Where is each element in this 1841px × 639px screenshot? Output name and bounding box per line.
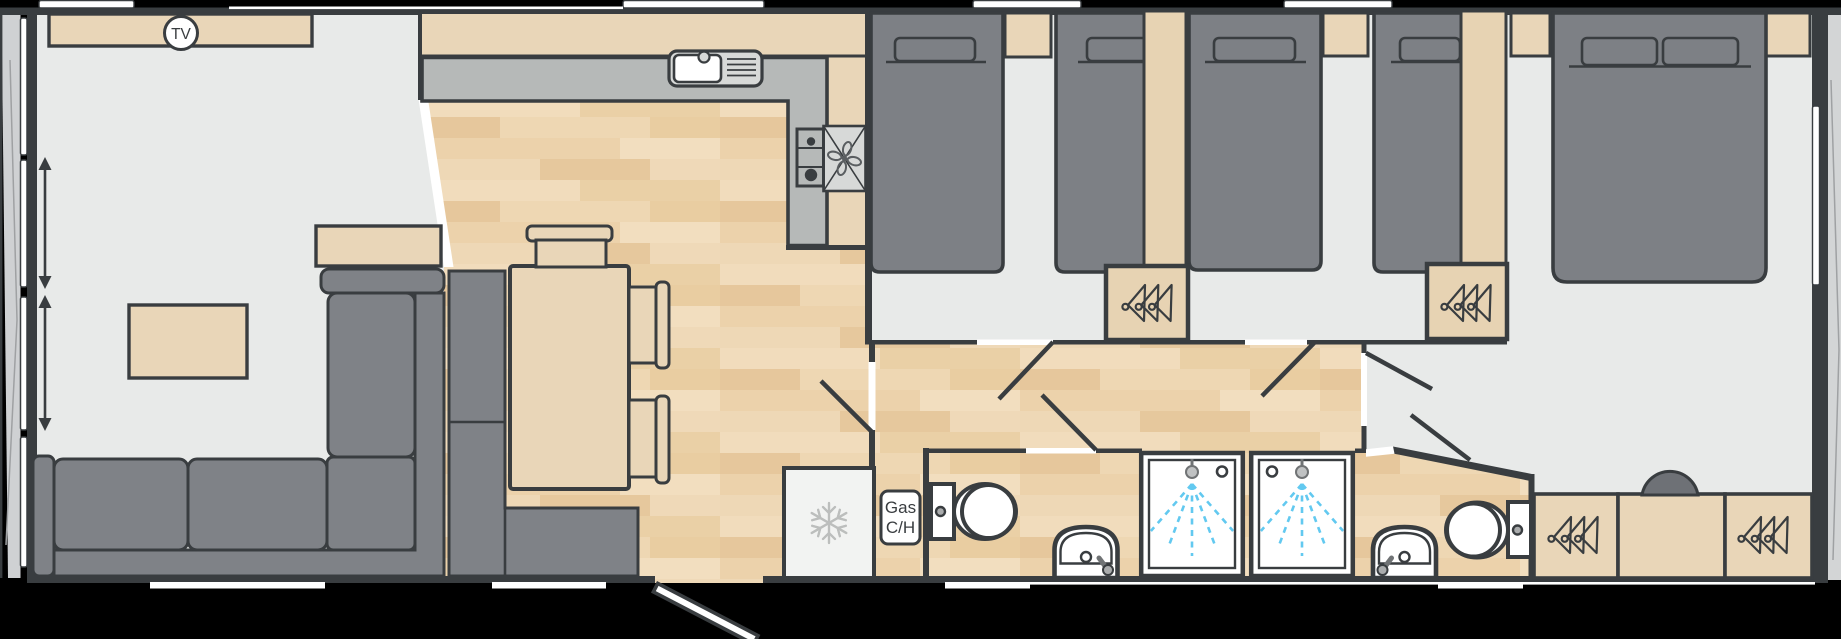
- svg-text:Gas: Gas: [885, 498, 916, 517]
- svg-text:TV: TV: [171, 26, 191, 43]
- svg-text:C/H: C/H: [886, 518, 915, 537]
